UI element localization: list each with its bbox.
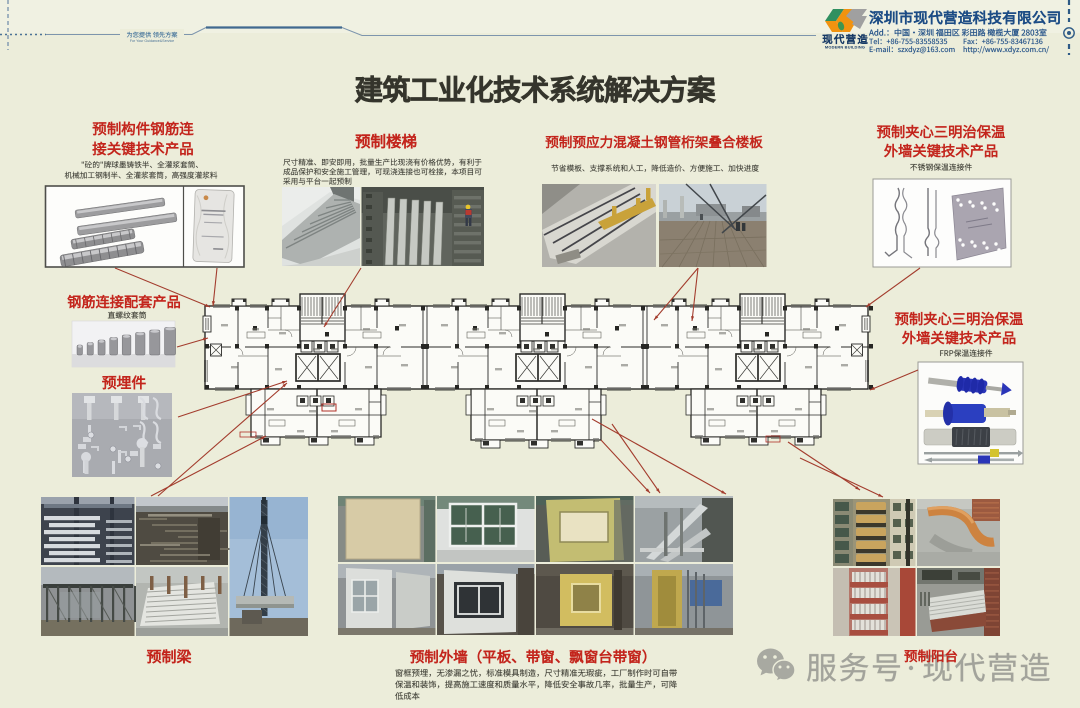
svg-text:MODERN BUILDING: MODERN BUILDING — [825, 45, 865, 50]
svg-text:For Your Guidance&Service: For Your Guidance&Service — [130, 39, 174, 43]
